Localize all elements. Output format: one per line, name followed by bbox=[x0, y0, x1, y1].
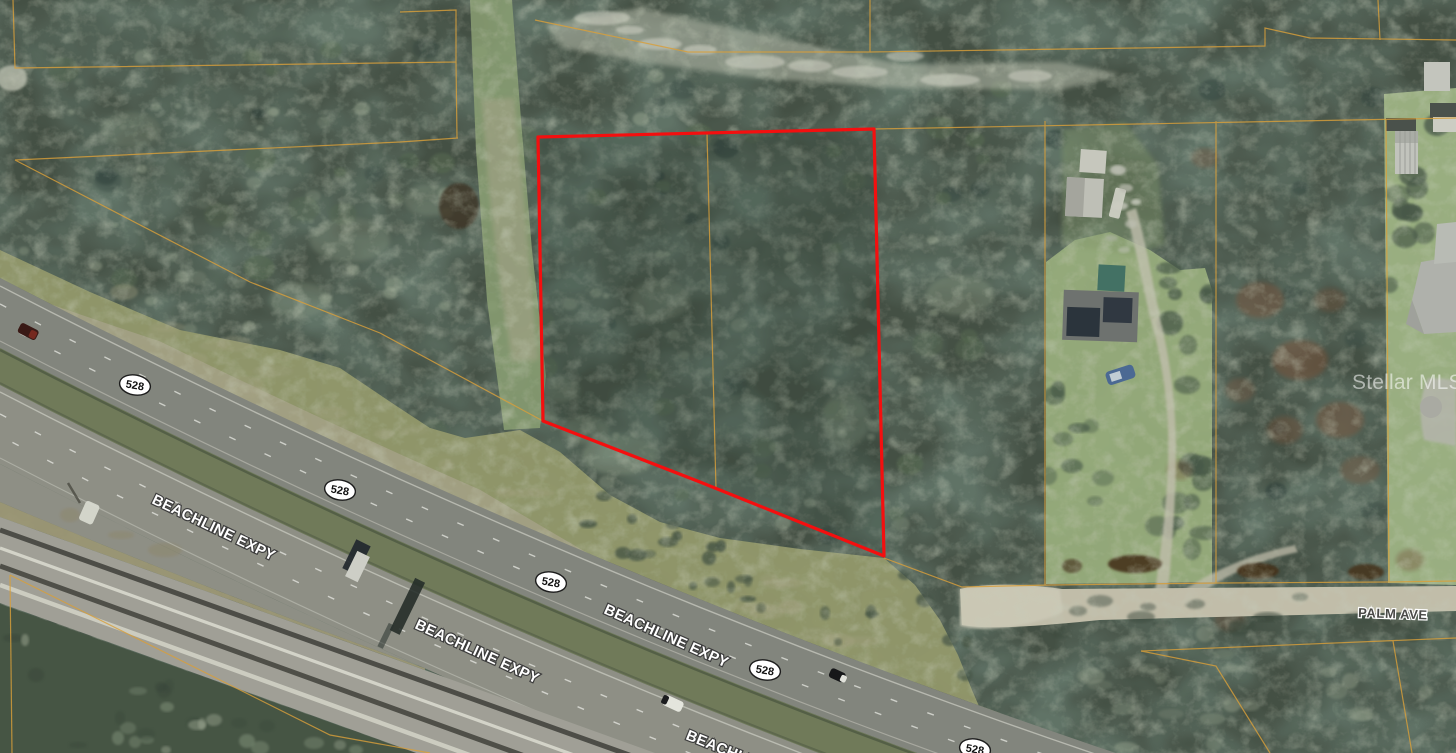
svg-text:PALM AVE: PALM AVE bbox=[1358, 605, 1428, 622]
svg-text:Stellar MLS: Stellar MLS bbox=[1352, 371, 1456, 394]
